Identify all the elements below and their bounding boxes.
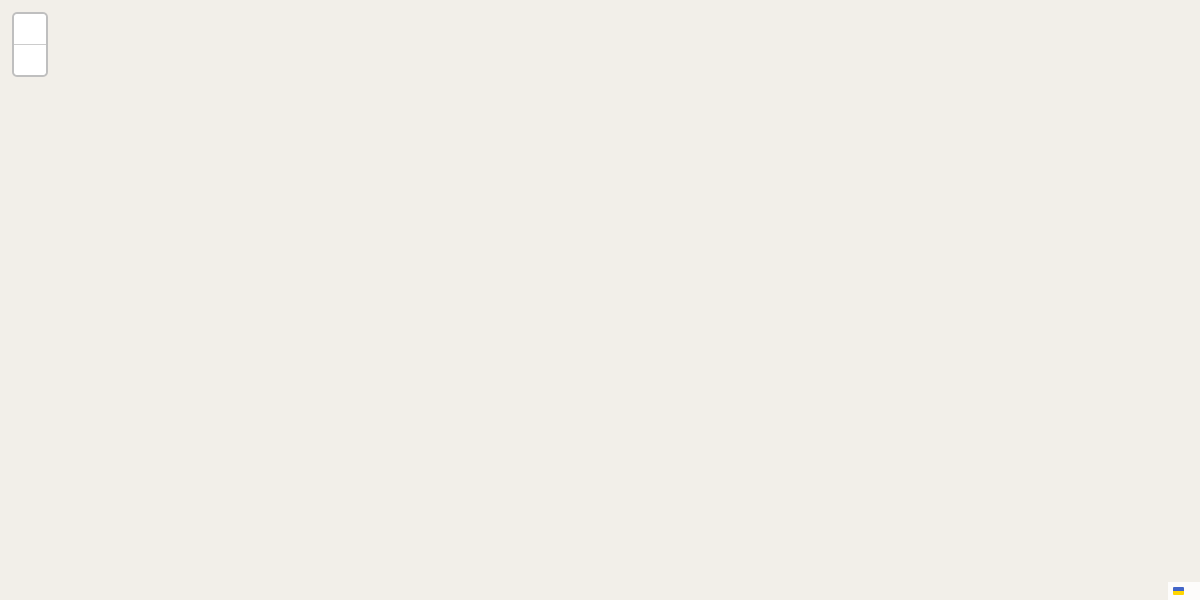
ukraine-flag-icon [1173, 587, 1184, 595]
map-canvas [0, 0, 1200, 600]
map-viewport[interactable] [0, 0, 1200, 600]
zoom-in-button[interactable] [14, 14, 46, 45]
zoom-out-button[interactable] [14, 45, 46, 75]
zoom-control [12, 12, 48, 77]
attribution-bar [1168, 582, 1200, 600]
